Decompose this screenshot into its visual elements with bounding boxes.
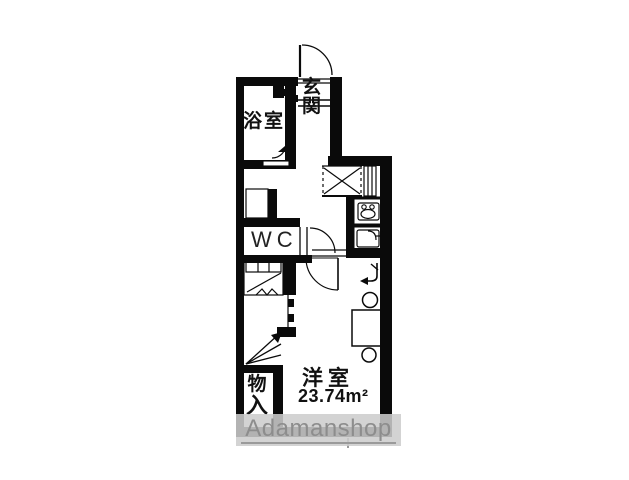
bathroom-door-leaf [278,146,285,152]
arrow-head [360,277,368,285]
wall-segment [268,189,277,218]
door-stop-mark [288,299,294,307]
closet-with-shelves [244,260,288,327]
main-room-area-label: 23.74m² [298,386,369,407]
x-closet-shelf-panel [364,166,376,196]
mini-kitchen-unit [353,226,390,250]
floor-plan-drawing [0,0,629,480]
fixture-circle [363,293,378,308]
wall-segment [273,85,284,98]
basin-handle [347,203,354,211]
toilet-label: WC [251,227,298,253]
counter-rect [352,310,382,346]
x-closet [322,166,376,196]
wall-segment [236,218,300,227]
basin-faucet-dot [362,205,366,209]
entrance-door-swing-arc [302,45,332,75]
wash-basin-unit [347,198,384,225]
closet-shelf-row [246,262,281,272]
entry-step-mark [290,95,298,102]
watermark-band: Adamanshop [236,414,401,446]
wc-door [300,227,335,255]
stairs [246,332,282,364]
hookup-arrow [360,263,378,285]
washing-machine-space [246,189,268,218]
bathroom-label: 浴室 [243,106,285,133]
floor-plan-image: 玄 関 浴室 WC 物 入 洋室 23.74m² Adamanshop [0,0,629,480]
fixture-circle [362,348,376,362]
storage-label-char: 入 [246,395,268,416]
entry-step-mark [283,89,291,96]
wall-segment [283,258,296,295]
stairs-arrow-head [271,332,282,343]
wall-segment [330,77,342,166]
kitchen-faucet-arc [368,231,376,240]
closet-diagonal [247,273,281,292]
entrance-label-char: 玄 [302,78,321,97]
main-room-fixtures [352,293,382,363]
wc-door-swing-arc [310,228,335,253]
wall-segment [236,77,298,86]
storage-label: 物 入 [246,374,268,416]
basin-bowl [361,210,375,219]
door-stop-mark [288,314,294,322]
entrance-label: 玄 関 [302,78,321,116]
wall-segment [243,365,277,373]
entrance-label-char: 関 [302,97,321,116]
watermark-text: Adamanshop [241,417,395,444]
basin-faucet-dot [370,205,374,209]
storage-label-char: 物 [246,374,268,395]
closet-zigzag [256,289,278,295]
